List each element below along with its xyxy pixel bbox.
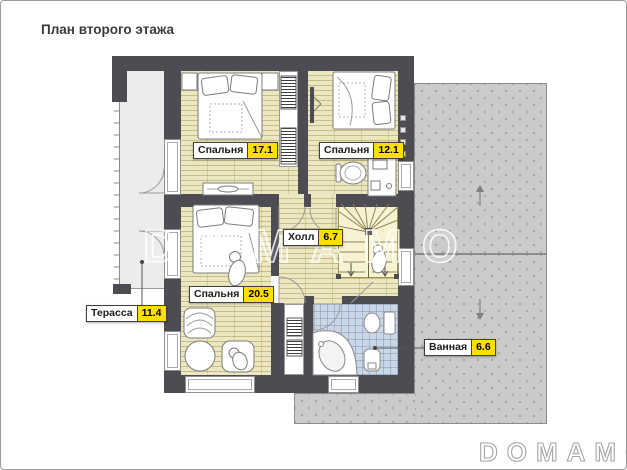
label-leaders (140, 260, 424, 350)
room-name: Спальня (319, 142, 374, 159)
wall-tv (310, 87, 321, 123)
double-bed (333, 72, 395, 129)
page-title: План второго этажа (41, 22, 174, 37)
room-name: Спальня (193, 142, 248, 159)
armchair (184, 308, 215, 338)
nightstand (262, 73, 278, 90)
room-area-badge: 11.4 (138, 305, 167, 322)
roof-arrow-up-icon (476, 185, 484, 206)
chair-with-person (222, 341, 254, 372)
staircase (336, 202, 399, 279)
double-bed (193, 205, 259, 273)
toilet (364, 312, 395, 334)
closet-shelves (287, 318, 302, 336)
bathroom-fixtures (313, 312, 395, 376)
nightstand (182, 73, 197, 90)
brand-logo: DOMAMO (479, 437, 627, 468)
room-name: Терасса (86, 305, 138, 322)
closet-shelves (287, 340, 302, 356)
room-area-badge: 20.5 (244, 286, 273, 303)
desk (368, 156, 396, 196)
room-area-badge: 6.7 (319, 229, 343, 246)
roof-arrow-down-icon (476, 299, 484, 320)
floor-plan-page: План второго этажа (0, 0, 627, 470)
room-label-bedroom-20: Спальня20.5 (189, 286, 274, 303)
bedroom-17-furniture (182, 73, 296, 195)
room-area-badge: 12.1 (374, 142, 403, 159)
round-table (185, 341, 215, 371)
closet-shelves (281, 76, 296, 109)
room-label-bathroom: Ванная6.6 (424, 339, 496, 356)
room-label-bedroom-12: Спальня12.1 (319, 142, 404, 159)
corner-bathtub (313, 331, 357, 376)
room-label-terrace: Терасса11.4 (86, 305, 167, 322)
room-label-hall: Холл6.7 (283, 229, 343, 246)
room-name: Спальня (189, 286, 244, 303)
bedroom-12-furniture (310, 72, 396, 196)
room-name: Холл (283, 229, 319, 246)
dresser (203, 183, 253, 195)
room-name: Ванная (424, 339, 472, 356)
bidet (364, 349, 380, 371)
room-label-bedroom-17: Спальня17.1 (193, 142, 278, 159)
terrace-railing (114, 102, 120, 284)
office-chair (336, 162, 366, 184)
room-area-badge: 17.1 (248, 142, 277, 159)
double-bed (198, 73, 262, 139)
room-area-badge: 6.6 (472, 339, 496, 356)
closet-shelves (281, 128, 296, 164)
